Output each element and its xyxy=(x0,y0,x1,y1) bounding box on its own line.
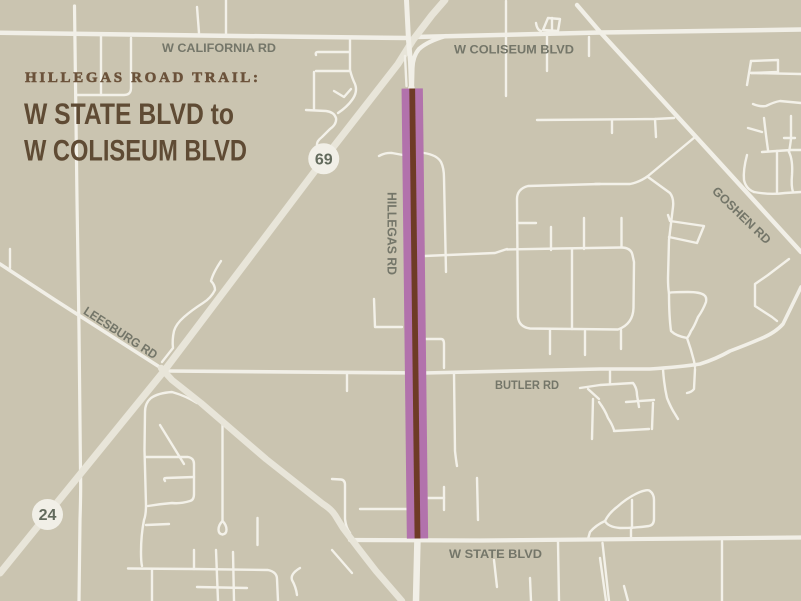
svg-text:W STATE BLVD: W STATE BLVD xyxy=(449,547,542,561)
svg-text:W COLISEUM BLVD: W COLISEUM BLVD xyxy=(24,135,247,168)
svg-text:HILLEGAS RD: HILLEGAS RD xyxy=(385,192,399,275)
svg-text:BUTLER RD: BUTLER RD xyxy=(495,378,559,392)
svg-text:W COLISEUM BLVD: W COLISEUM BLVD xyxy=(454,43,574,57)
svg-text:W STATE BLVD to: W STATE BLVD to xyxy=(24,98,234,131)
svg-text:W CALIFORNIA RD: W CALIFORNIA RD xyxy=(162,41,276,55)
svg-text:HILLEGAS ROAD TRAIL:: HILLEGAS ROAD TRAIL: xyxy=(25,70,258,86)
svg-text:69: 69 xyxy=(315,152,333,169)
svg-text:24: 24 xyxy=(39,507,57,524)
